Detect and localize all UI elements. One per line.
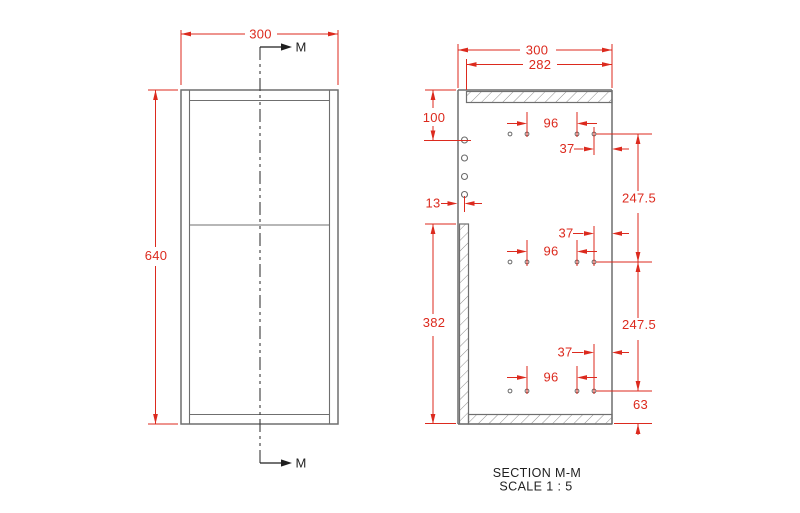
- arrow-icon: [612, 147, 622, 152]
- hole-edge-offset-value: 37: [559, 141, 574, 156]
- arrow-icon: [636, 424, 641, 434]
- arrow-icon: [602, 62, 612, 67]
- arrow-icon: [584, 350, 594, 355]
- section-arrow-top-head-icon: [281, 43, 292, 50]
- hole-spacing-value: 96: [543, 244, 558, 259]
- arrow-icon: [517, 121, 527, 126]
- top-offset-dimension: 100: [423, 90, 471, 141]
- arrow-icon: [584, 231, 594, 236]
- arrow-icon: [636, 262, 641, 272]
- row-spacing-dimensions: 247.5 247.5 63: [596, 134, 656, 435]
- front-height-value: 640: [145, 248, 168, 263]
- drill-hole-row-3: [508, 389, 596, 393]
- front-width-value: 300: [249, 27, 272, 42]
- hole-dims-row-2: 37 96: [507, 226, 629, 267]
- front-view: M M 300 640: [145, 27, 338, 471]
- hole-dims-row-3: 37 96: [507, 344, 629, 394]
- arrow-icon: [458, 48, 468, 53]
- arrow-icon: [328, 32, 338, 37]
- arrow-icon: [517, 249, 527, 254]
- arrow-icon: [431, 131, 436, 141]
- hole-spacing-value: 96: [543, 116, 558, 131]
- section-arrow-top: M: [260, 40, 306, 55]
- section-title-block: SECTION M-M SCALE 1 : 5: [493, 466, 581, 494]
- arrow-icon: [448, 201, 458, 206]
- arrow-icon: [153, 414, 158, 424]
- section-view: 300 282 100 13: [423, 43, 656, 494]
- hole-spacing-value: 96: [543, 370, 558, 385]
- arrow-icon: [467, 62, 477, 67]
- section-panel-width-dimension: 282: [467, 57, 613, 72]
- bottom-offset-value: 63: [633, 397, 648, 412]
- hole-edge-offset-value: 37: [558, 226, 573, 241]
- section-outer-width-value: 300: [526, 43, 549, 58]
- pin-hole: [462, 174, 468, 180]
- side-panel-height-value: 382: [423, 315, 446, 330]
- arrow-icon: [153, 90, 158, 100]
- drawing-sheet: M M 300 640: [0, 0, 800, 513]
- arrow-icon: [431, 414, 436, 424]
- arrow-icon: [577, 249, 587, 254]
- drill-hole-row-2: [508, 260, 596, 264]
- arrow-icon: [431, 90, 436, 100]
- technical-drawing-canvas: M M 300 640: [0, 0, 800, 513]
- section-scale: SCALE 1 : 5: [499, 480, 572, 494]
- section-arrow-bottom-head-icon: [281, 459, 292, 466]
- arrow-icon: [577, 121, 587, 126]
- arrow-icon: [431, 224, 436, 234]
- arrow-icon: [181, 32, 191, 37]
- arrow-icon: [636, 134, 641, 144]
- arrow-icon: [636, 381, 641, 391]
- section-panel-width-value: 282: [529, 57, 552, 72]
- arrow-icon: [636, 252, 641, 262]
- section-label-top: M: [296, 40, 307, 55]
- back-inset-dimension: 13: [425, 196, 482, 213]
- side-panel-section-hatch: [460, 224, 469, 424]
- bottom-panel-section-hatch: [469, 415, 613, 425]
- shelf-pin-holes: [462, 137, 468, 198]
- section-label-bottom: M: [296, 456, 307, 471]
- side-panel-height-dimension: 382: [423, 224, 456, 424]
- arrow-icon: [584, 147, 594, 152]
- arrow-icon: [612, 231, 622, 236]
- arrow-icon: [577, 375, 587, 380]
- section-arrow-bottom: M: [260, 456, 306, 471]
- arrow-icon: [517, 375, 527, 380]
- pin-hole: [462, 155, 468, 161]
- arrow-icon: [602, 48, 612, 53]
- top-panel-section-hatch: [467, 92, 613, 103]
- row-spacing-upper-value: 247.5: [622, 191, 656, 206]
- row-spacing-lower-value: 247.5: [622, 317, 656, 332]
- top-offset-value: 100: [423, 110, 446, 125]
- back-inset-value: 13: [425, 196, 440, 211]
- arrow-icon: [465, 201, 475, 206]
- hole-edge-offset-value: 37: [557, 345, 572, 360]
- arrow-icon: [612, 350, 622, 355]
- front-height-dimension: 640: [145, 90, 178, 424]
- drill-hole-row-1: [508, 132, 596, 136]
- section-title: SECTION M-M: [493, 466, 581, 480]
